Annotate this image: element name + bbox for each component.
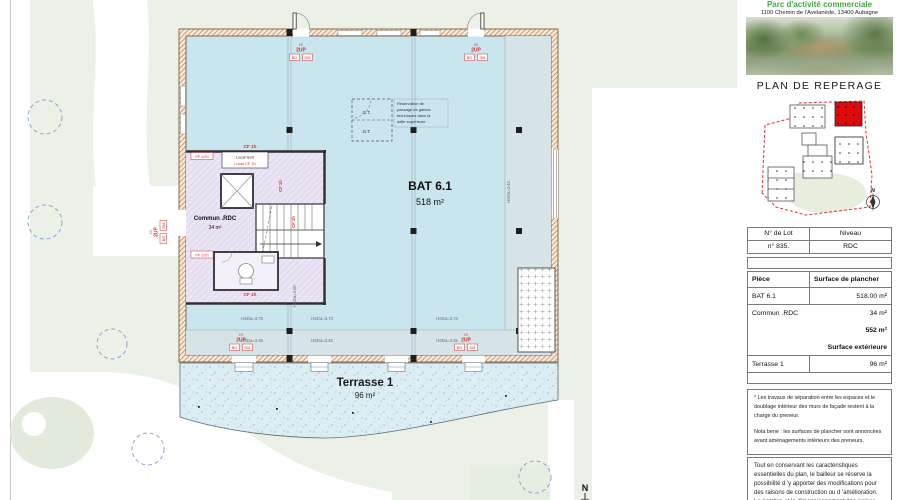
- panel-header: Parc d'activité commerciale 1100 Chemin …: [746, 0, 893, 17]
- svg-text:HSDa=3.45: HSDa=3.45: [506, 180, 511, 202]
- svg-text:IS: IS: [239, 332, 243, 337]
- cf-label: CF 1h: [244, 292, 257, 297]
- svg-text:2UP: 2UP: [236, 338, 246, 344]
- lot-col-header: N° de Lot: [748, 228, 810, 241]
- note-nota-bene: Nota bene : les surfaces de plancher son…: [754, 428, 885, 446]
- svg-text:HSDa=3.45: HSDa=3.45: [436, 338, 458, 343]
- spacer-row: [747, 257, 892, 269]
- reservation-note: dalle supérieure: [397, 119, 426, 124]
- svg-text:HSDa=3.73: HSDa=3.73: [241, 316, 263, 321]
- lot-table: N° de Lot Niveau n° 835. RDC: [747, 227, 892, 254]
- panel-title: PLAN DE REPERAGE: [746, 80, 893, 92]
- path-walkway-left: [93, 0, 150, 186]
- bat-name: BAT 6.1: [408, 179, 452, 193]
- right-glazing: [552, 150, 559, 218]
- level-col-header: Niveau: [810, 228, 891, 241]
- svg-text:DM: DM: [480, 56, 486, 60]
- ramp-area: [518, 268, 555, 352]
- gt-label: .G.T.: [361, 110, 370, 115]
- svg-text:2UP: 2UP: [296, 48, 306, 54]
- pf-label: PF 1/2h: [191, 153, 213, 160]
- cf-label: CF 1h: [278, 180, 283, 192]
- wc-room: [214, 252, 278, 290]
- svg-text:DM: DM: [245, 346, 251, 350]
- staircase: [256, 204, 324, 258]
- row-value: 96 m²: [810, 356, 891, 372]
- cf-label: CF 1h: [244, 144, 257, 149]
- svg-text:2UP: 2UP: [461, 338, 471, 344]
- table-row: BAT 6.1 518.00 m²: [748, 288, 891, 305]
- surface-table-header: Pièce Surface de plancher: [748, 272, 891, 288]
- elevator: [221, 174, 253, 208]
- row-label: Commun .RDC: [748, 305, 810, 322]
- row-value: 552 m²: [810, 322, 891, 339]
- svg-text:PF 1/2h: PF 1/2h: [195, 155, 208, 159]
- surface-col-header: Surface de plancher: [810, 272, 891, 287]
- svg-text:HSDa=3.45: HSDa=3.45: [311, 338, 333, 343]
- svg-text:N: N: [582, 483, 589, 493]
- row-value: 518.00 m²: [810, 288, 891, 304]
- svg-text:BG: BG: [467, 56, 473, 60]
- svg-text:2UP: 2UP: [471, 48, 481, 54]
- svg-text:BG: BG: [232, 346, 238, 350]
- local-tech: Local tech Local CF 1h: [222, 152, 268, 168]
- commun-area: 34 m²: [209, 225, 222, 231]
- park-name: Parc d'activité commerciale: [746, 0, 893, 9]
- cf-label: CF 1h: [291, 216, 296, 228]
- floor-plan-drawing: Terrasse 1 96 m²: [0, 0, 746, 500]
- svg-text:PF 1/2h: PF 1/2h: [195, 253, 208, 257]
- bat-area: 518 m²: [416, 197, 444, 207]
- row-value: Surface extérieure: [810, 339, 891, 355]
- svg-text:BG: BG: [457, 346, 463, 350]
- svg-text:IS: IS: [299, 42, 303, 47]
- table-row: Commun .RDC 34 m²: [748, 305, 891, 322]
- pf-label: PF 1/2h: [191, 251, 213, 258]
- path-below-terrace: [548, 400, 574, 500]
- table-row: Surface extérieure: [748, 339, 891, 356]
- terrace-area: 96 m²: [355, 391, 376, 400]
- svg-text:BG: BG: [292, 56, 298, 60]
- plan-page: Terrasse 1 96 m²: [0, 0, 900, 500]
- table-row: 552 m²: [748, 322, 891, 339]
- svg-text:N: N: [871, 188, 875, 194]
- reservation-note: Réservation de: [397, 101, 425, 106]
- svg-text:IS: IS: [464, 332, 468, 337]
- terrace-name: Terrasse 1: [337, 377, 394, 389]
- svg-text:HSDa=2.80: HSDa=2.80: [292, 284, 297, 306]
- note-disclaimer: Tout en conservant les caractéristiques …: [754, 462, 885, 500]
- row-label: Terrasse 1: [748, 356, 810, 372]
- gt-label: .G.T.: [361, 129, 370, 134]
- site-photo: [746, 17, 893, 75]
- row-label: [748, 339, 810, 355]
- row-label: BAT 6.1: [748, 288, 810, 304]
- local-tech-label: Local tech: [236, 155, 254, 160]
- svg-text:2UP: 2UP: [154, 226, 160, 236]
- level-value: RDC: [810, 241, 891, 254]
- disclaimer-box: Tout en conservant les caractéristiques …: [747, 457, 892, 500]
- row-label: [748, 322, 810, 339]
- svg-text:DM: DM: [162, 223, 166, 229]
- park-address: 1100 Chemin de l'Avelanède, 13400 Aubagn…: [746, 9, 893, 17]
- row-value: 34 m²: [810, 305, 891, 322]
- path-entrance: [93, 186, 180, 256]
- svg-text:DM: DM: [305, 56, 311, 60]
- svg-text:IS: IS: [148, 230, 153, 234]
- map-building: [803, 156, 832, 178]
- map-building: [808, 145, 827, 156]
- local-cf-label: Local CF 1h: [234, 161, 256, 166]
- svg-text:IS: IS: [474, 42, 478, 47]
- reservation-note: passage de gaines: [397, 107, 431, 112]
- svg-text:DM: DM: [470, 346, 476, 350]
- piece-col-header: Pièce: [748, 272, 810, 287]
- map-building: [835, 137, 863, 164]
- map-building: [790, 105, 825, 128]
- svg-text:HSDa=3.73: HSDa=3.73: [436, 316, 458, 321]
- map-building: [802, 133, 816, 145]
- commun-name: Commun .RDC: [194, 216, 237, 222]
- table-row: Terrasse 1 96 m²: [748, 356, 891, 373]
- lot-number: n° 835.: [748, 241, 810, 254]
- note-travaux: * Les travaux de séparation entre les es…: [754, 394, 885, 421]
- commun-core: Local tech Local CF 1h Commun .RDC 34 m²…: [186, 144, 326, 305]
- map-building-highlighted: [835, 102, 862, 126]
- reservation-note: techniques dans la: [397, 113, 431, 118]
- surface-table: Pièce Surface de plancher BAT 6.1 518.00…: [747, 271, 892, 384]
- site-location-map: N: [746, 95, 893, 226]
- notes-box: * Les travaux de séparation entre les es…: [747, 389, 892, 455]
- info-panel: Parc d'activité commerciale 1100 Chemin …: [746, 0, 893, 500]
- map-building: [768, 167, 794, 201]
- svg-text:BG: BG: [162, 236, 166, 242]
- svg-text:HSDa=3.73: HSDa=3.73: [311, 316, 333, 321]
